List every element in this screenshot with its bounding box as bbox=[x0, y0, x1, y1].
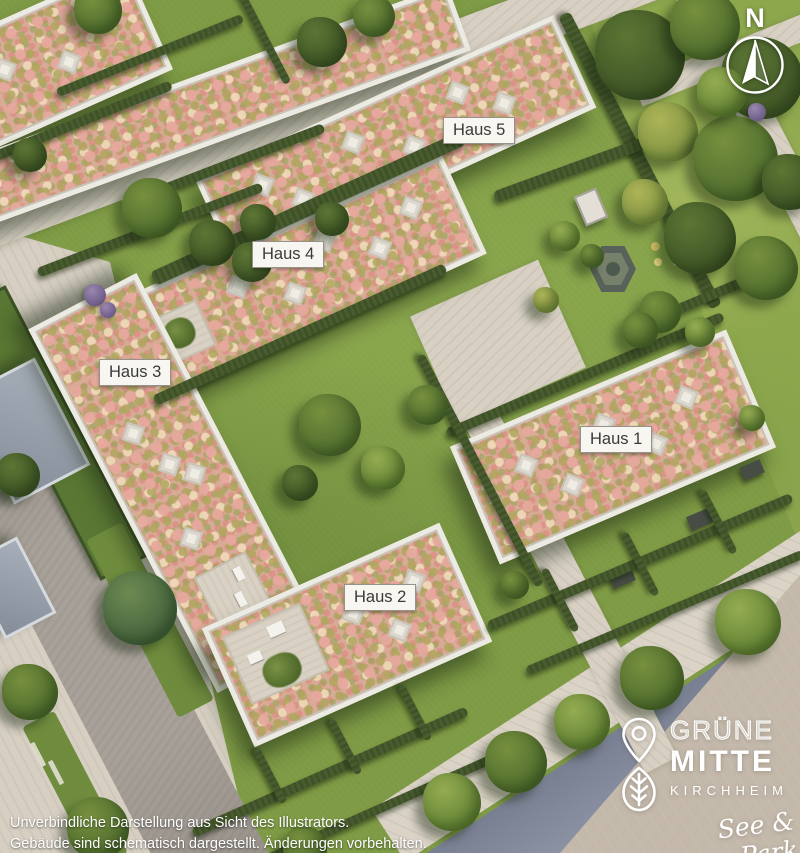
tree bbox=[580, 244, 604, 268]
tree bbox=[762, 154, 800, 210]
logo-pin-leaf-icon bbox=[616, 716, 662, 816]
brand-name-line3: KIRCHHEIM bbox=[670, 781, 796, 802]
tree bbox=[622, 179, 668, 225]
tree bbox=[620, 646, 684, 710]
disclaimer-line1: Unverbindliche Darstellung aus Sicht des… bbox=[10, 813, 427, 834]
logo: GRÜNE MITTE KIRCHHEIM See & Park bbox=[610, 710, 796, 848]
site-plan: Haus 1 Haus 2 Haus 3 Haus 4 Haus 5 N GRÜ… bbox=[0, 0, 800, 853]
haus-label-2[interactable]: Haus 2 bbox=[344, 584, 416, 611]
haus-label-3[interactable]: Haus 3 bbox=[99, 359, 171, 386]
tree bbox=[501, 571, 529, 599]
hedge-strip bbox=[154, 123, 326, 197]
tree bbox=[638, 102, 698, 162]
tree bbox=[361, 446, 405, 490]
logo-text: GRÜNE MITTE KIRCHHEIM See & Park bbox=[670, 716, 796, 853]
brand-name-line2: MITTE bbox=[670, 745, 796, 780]
compass-needle-icon bbox=[724, 34, 786, 96]
tree bbox=[685, 317, 715, 347]
tree bbox=[2, 664, 58, 720]
tree bbox=[282, 465, 318, 501]
tree bbox=[100, 302, 116, 318]
tree bbox=[734, 236, 798, 300]
tree bbox=[103, 571, 177, 645]
tree bbox=[297, 17, 347, 67]
disclaimer-line2: Gebäude sind schematisch dargestellt. Än… bbox=[10, 834, 427, 853]
tree bbox=[315, 202, 349, 236]
tree bbox=[74, 0, 122, 34]
tree bbox=[554, 694, 610, 750]
tree bbox=[13, 138, 47, 172]
tree bbox=[122, 178, 182, 238]
tree bbox=[423, 773, 481, 831]
tree bbox=[739, 405, 765, 431]
hedge-strip bbox=[229, 0, 292, 85]
compass: N bbox=[720, 4, 790, 100]
disclaimer: Unverbindliche Darstellung aus Sicht des… bbox=[10, 813, 427, 853]
haus-label-4[interactable]: Haus 4 bbox=[252, 241, 324, 268]
tree bbox=[715, 589, 781, 655]
tree bbox=[240, 204, 276, 240]
haus-label-5[interactable]: Haus 5 bbox=[443, 117, 515, 144]
tree bbox=[622, 312, 658, 348]
tree bbox=[550, 221, 580, 251]
haus-label-1[interactable]: Haus 1 bbox=[580, 426, 652, 453]
tree bbox=[0, 453, 40, 497]
tree bbox=[189, 220, 235, 266]
hedge-strip bbox=[152, 263, 448, 406]
tree bbox=[408, 385, 448, 425]
hedge-strip bbox=[445, 312, 725, 438]
tree bbox=[664, 202, 736, 274]
brand-tagline: See & Park bbox=[667, 806, 799, 853]
compass-north-label: N bbox=[720, 4, 790, 34]
tree bbox=[748, 103, 766, 121]
brand-name-line1: GRÜNE bbox=[670, 716, 796, 745]
tree bbox=[299, 394, 361, 456]
tree bbox=[533, 287, 559, 313]
tree bbox=[485, 731, 547, 793]
tree bbox=[353, 0, 395, 37]
